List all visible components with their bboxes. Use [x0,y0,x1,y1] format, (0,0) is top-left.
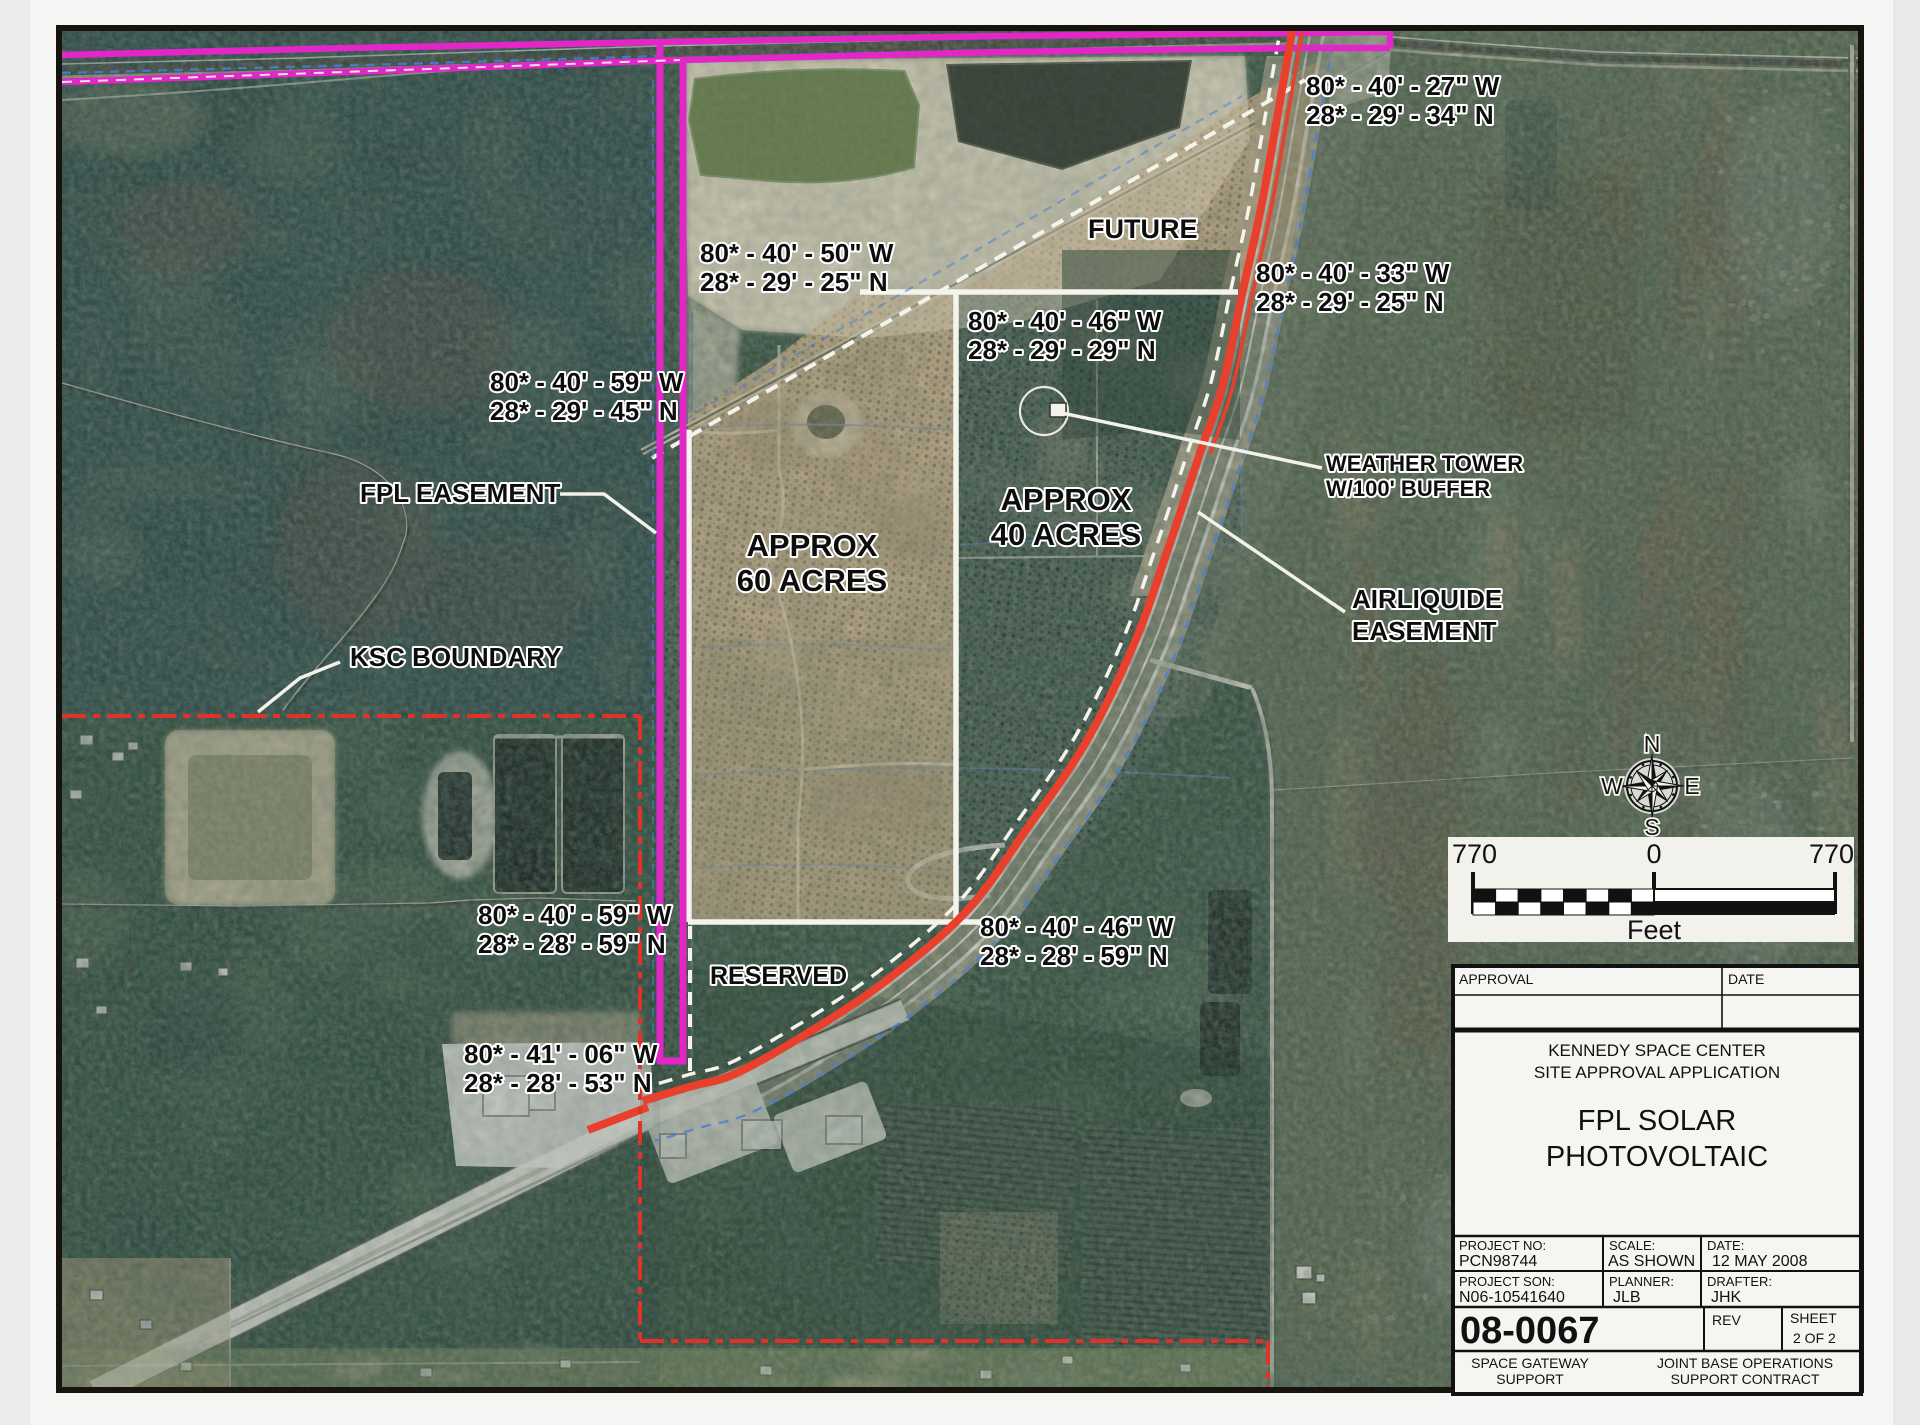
svg-text:80* - 40' - 59" W: 80* - 40' - 59" W [478,900,672,930]
svg-text:0: 0 [1646,839,1661,869]
svg-text:28* - 29' - 25" N: 28* - 29' - 25" N [1256,287,1444,317]
svg-text:770: 770 [1809,839,1854,869]
svg-text:JOINT BASE OPERATIONS: JOINT BASE OPERATIONS [1657,1355,1833,1371]
svg-text:DATE: DATE [1728,971,1764,987]
svg-text:AS SHOWN: AS SHOWN [1608,1253,1695,1270]
svg-text:80* - 40' - 46" W: 80* - 40' - 46" W [968,306,1162,336]
svg-text:APPROX: APPROX [747,528,878,563]
svg-text:PROJECT SON:: PROJECT SON: [1459,1274,1555,1289]
svg-text:PLANNER:: PLANNER: [1609,1274,1674,1289]
svg-text:EASEMENT: EASEMENT [1352,616,1497,646]
svg-text:PROJECT NO:: PROJECT NO: [1459,1238,1546,1253]
svg-text:28* - 29' - 34" N: 28* - 29' - 34" N [1306,100,1494,130]
svg-text:28* - 29' - 29" N: 28* - 29' - 29" N [968,335,1156,365]
svg-text:12 MAY 2008: 12 MAY 2008 [1712,1253,1808,1270]
svg-text:E: E [1684,773,1699,799]
svg-text:DRAFTER:: DRAFTER: [1707,1274,1772,1289]
svg-text:FUTURE: FUTURE [1088,214,1198,244]
svg-text:80* - 40' - 46" W: 80* - 40' - 46" W [980,912,1174,942]
svg-text:KENNEDY SPACE CENTER: KENNEDY SPACE CENTER [1548,1041,1766,1060]
svg-text:W: W [1601,773,1623,799]
svg-text:APPROVAL: APPROVAL [1459,971,1534,987]
svg-text:APPROX: APPROX [1001,482,1132,517]
svg-text:2 OF 2: 2 OF 2 [1793,1330,1836,1346]
svg-text:Feet: Feet [1627,915,1682,945]
svg-text:N: N [1644,731,1661,757]
svg-text:28* - 29' - 45" N: 28* - 29' - 45" N [490,396,678,426]
svg-text:770: 770 [1452,839,1497,869]
svg-text:SITE APPROVAL APPLICATION: SITE APPROVAL APPLICATION [1534,1063,1780,1082]
svg-text:W/100' BUFFER: W/100' BUFFER [1326,476,1490,501]
svg-text:SCALE:: SCALE: [1609,1238,1655,1253]
svg-text:08-0067: 08-0067 [1460,1310,1599,1352]
svg-text:JLB: JLB [1613,1289,1641,1306]
svg-text:SHEET: SHEET [1790,1310,1837,1326]
svg-text:FPL EASEMENT: FPL EASEMENT [360,478,560,508]
svg-text:SPACE GATEWAY: SPACE GATEWAY [1471,1355,1589,1371]
svg-text:RESERVED: RESERVED [710,962,847,990]
svg-text:SUPPORT CONTRACT: SUPPORT CONTRACT [1671,1371,1820,1387]
svg-text:DATE:: DATE: [1707,1238,1744,1253]
svg-text:AIRLIQUIDE: AIRLIQUIDE [1352,584,1502,614]
svg-text:40 ACRES: 40 ACRES [991,517,1141,552]
svg-text:JHK: JHK [1711,1289,1742,1306]
svg-text:80* - 40' - 33" W: 80* - 40' - 33" W [1256,258,1450,288]
svg-text:SUPPORT: SUPPORT [1496,1371,1564,1387]
svg-text:28* - 29' - 25" N: 28* - 29' - 25" N [700,267,888,297]
svg-text:REV: REV [1712,1312,1741,1328]
svg-text:FPL SOLAR: FPL SOLAR [1578,1105,1736,1137]
svg-text:80* - 40' - 27" W: 80* - 40' - 27" W [1306,71,1500,101]
svg-text:S: S [1644,814,1659,840]
svg-text:WEATHER TOWER: WEATHER TOWER [1326,451,1523,476]
svg-text:KSC BOUNDARY: KSC BOUNDARY [350,642,561,672]
svg-text:N06-10541640: N06-10541640 [1459,1289,1565,1306]
svg-text:80* - 40' - 50" W: 80* - 40' - 50" W [700,238,894,268]
svg-text:60 ACRES: 60 ACRES [737,563,887,598]
svg-text:80* - 41' - 06" W: 80* - 41' - 06" W [464,1039,658,1069]
svg-text:28* - 28' - 59" N: 28* - 28' - 59" N [980,941,1168,971]
svg-text:80* - 40' - 59" W: 80* - 40' - 59" W [490,367,684,397]
svg-text:PHOTOVOLTAIC: PHOTOVOLTAIC [1546,1141,1768,1173]
svg-text:PCN98744: PCN98744 [1459,1253,1537,1270]
svg-text:28* - 28' - 59" N: 28* - 28' - 59" N [478,929,666,959]
svg-text:28* - 28' - 53" N: 28* - 28' - 53" N [464,1068,652,1098]
